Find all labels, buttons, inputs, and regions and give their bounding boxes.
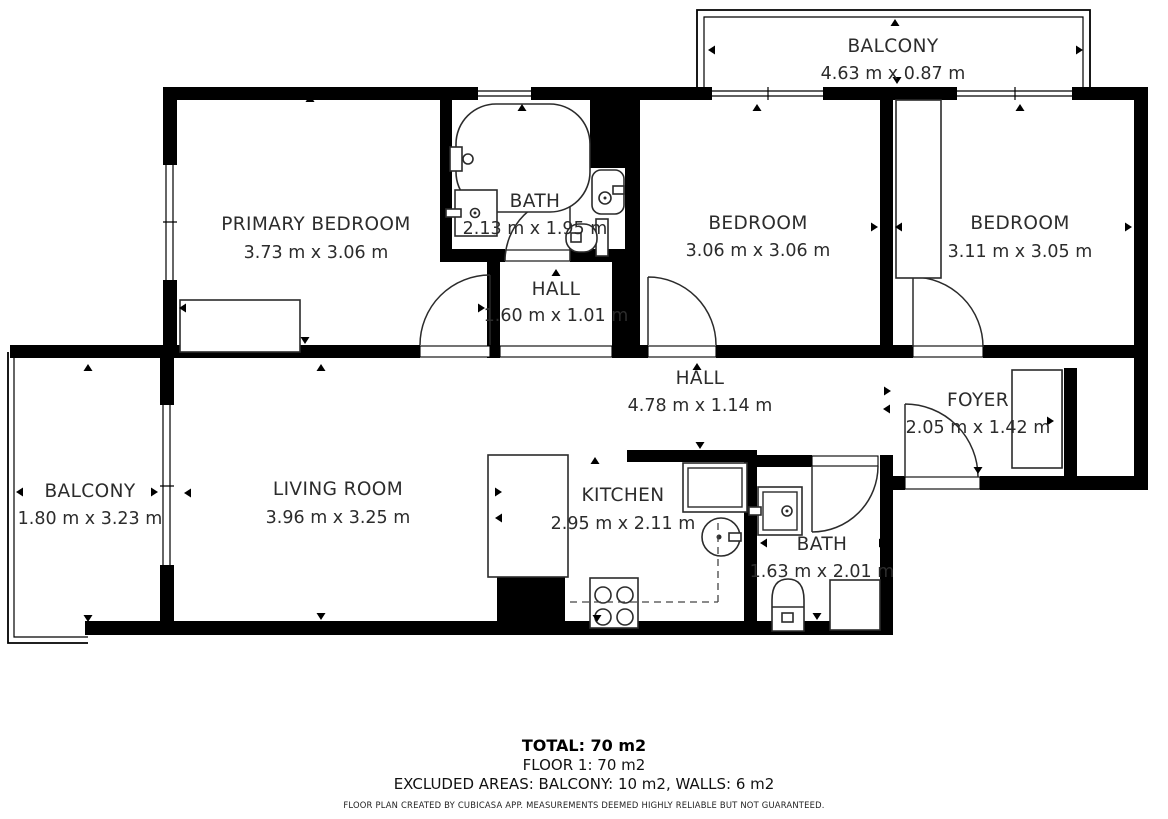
sliding-door-balcony-2 — [957, 87, 1072, 100]
room-dimensions-hall-main: 4.78 m x 1.14 m — [628, 396, 773, 416]
room-label-bedroom-middle: BEDROOM — [708, 213, 807, 234]
room-label-bath-lower: BATH — [797, 534, 848, 555]
washbasin-top-right-icon — [592, 170, 624, 214]
room-dimensions-balcony-top: 4.63 m x 0.87 m — [821, 64, 966, 84]
disclaimer-text: FLOOR PLAN CREATED BY CUBICASA APP. MEAS… — [343, 800, 824, 810]
room-label-bath-top: BATH — [510, 191, 561, 212]
room-dimensions-hall-upper: 1.60 m x 1.01 m — [484, 306, 629, 326]
door-bedroom-middle — [648, 277, 716, 345]
room-dimensions-bath-lower: 1.63 m x 2.01 m — [750, 562, 895, 582]
floor-plan-drawing: BALCONY 4.63 m x 0.87 m PRIMARY BEDROOM … — [0, 0, 1168, 819]
room-label-balcony-left: BALCONY — [44, 481, 135, 502]
room-label-hall-upper: HALL — [532, 279, 581, 300]
room-dimensions-balcony-left: 1.80 m x 3.23 m — [18, 509, 163, 529]
toilet-lower-icon — [772, 579, 804, 631]
sliding-door-left-balcony — [160, 405, 174, 565]
wardrobe-bedroom-right — [896, 100, 941, 278]
room-label-foyer: FOYER — [947, 390, 1009, 411]
fixtures — [180, 100, 1062, 631]
room-dimensions-living-room: 3.96 m x 3.25 m — [266, 508, 411, 528]
door-entry — [905, 404, 978, 477]
room-label-bedroom-right: BEDROOM — [970, 213, 1069, 234]
door-bedroom-right — [913, 277, 983, 347]
total-area-text: TOTAL: 70 m2 — [522, 736, 646, 755]
window-left-wall — [163, 165, 177, 280]
room-dimensions-bedroom-right: 3.11 m x 3.05 m — [948, 242, 1093, 262]
room-label-balcony-top: BALCONY — [847, 36, 938, 57]
kitchen-sink-icon — [702, 518, 741, 556]
room-label-hall-main: HALL — [676, 368, 725, 389]
wardrobe-primary-bedroom — [180, 300, 300, 352]
kitchen-cabinet-icon — [683, 463, 747, 512]
room-dimensions-primary-bedroom: 3.73 m x 3.06 m — [244, 243, 389, 263]
room-dimensions-bedroom-middle: 3.06 m x 3.06 m — [686, 241, 831, 261]
room-dimensions-kitchen: 2.95 m x 2.11 m — [551, 514, 696, 534]
room-dimensions-bath-top: 2.13 m x 1.95 m — [463, 219, 608, 239]
floor-plan-canvas: BALCONY 4.63 m x 0.87 m PRIMARY BEDROOM … — [0, 0, 1168, 819]
door-bath-lower — [812, 466, 878, 532]
summary-footer: TOTAL: 70 m2 FLOOR 1: 70 m2 EXCLUDED ARE… — [343, 736, 824, 810]
room-dimensions-foyer: 2.05 m x 1.42 m — [906, 418, 1051, 438]
room-label-living-room: LIVING ROOM — [273, 479, 403, 500]
excluded-areas-text: EXCLUDED AREAS: BALCONY: 10 m2, WALLS: 6… — [394, 775, 775, 793]
floor-area-text: FLOOR 1: 70 m2 — [523, 756, 646, 774]
window-bath-top — [478, 87, 531, 100]
room-label-primary-bedroom: PRIMARY BEDROOM — [221, 214, 411, 235]
shower-icon — [830, 580, 880, 630]
sliding-door-balcony-1 — [712, 87, 823, 100]
room-label-kitchen: KITCHEN — [582, 485, 665, 506]
